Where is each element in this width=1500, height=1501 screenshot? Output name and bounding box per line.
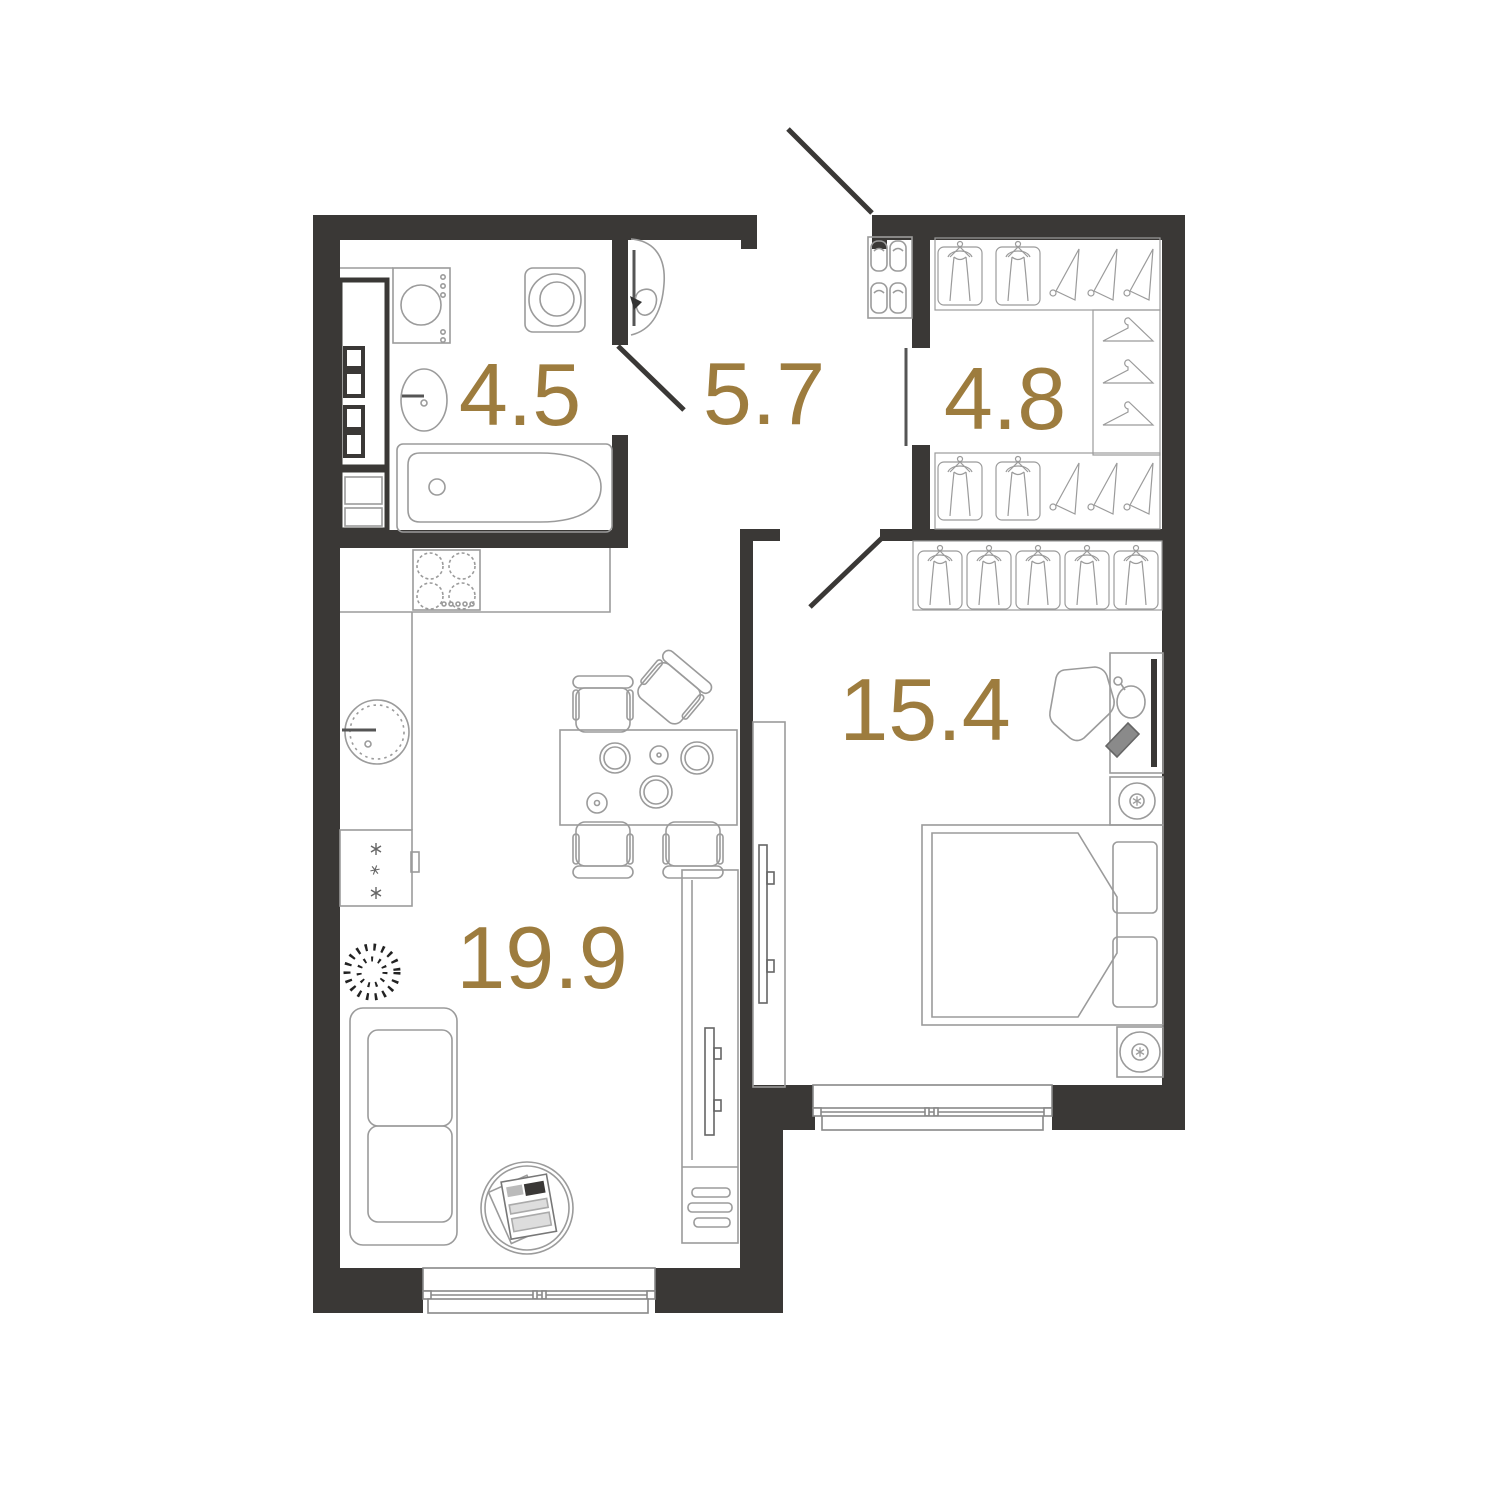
bathroom-sink-icon bbox=[401, 369, 447, 431]
toilet-icon bbox=[525, 268, 585, 332]
entrance-door-swing bbox=[788, 129, 872, 213]
wall-top-right bbox=[872, 215, 1185, 240]
wall-wardrobe-left-lower bbox=[912, 445, 930, 529]
chair-icon bbox=[573, 822, 633, 878]
wall-top-left bbox=[313, 215, 757, 240]
bathroom-door-swing bbox=[618, 346, 684, 410]
wall-right bbox=[1162, 215, 1185, 1130]
wall-living-bottom-right bbox=[655, 1268, 783, 1313]
wall-bedroom-bottom-right bbox=[1052, 1085, 1185, 1130]
pouf-icon bbox=[1117, 1027, 1163, 1077]
wall-partition bbox=[740, 529, 753, 1085]
wall-bathroom-right-lower bbox=[612, 435, 628, 532]
dining-table-icon bbox=[560, 730, 737, 825]
room-label-bathroom: 4.5 bbox=[459, 345, 581, 444]
floor-plan-canvas: 4.5 5.7 4.8 15.4 19.9 bbox=[0, 0, 1500, 1501]
chair-icon bbox=[573, 676, 633, 732]
wall-left bbox=[313, 215, 340, 1313]
room-label-living: 19.9 bbox=[456, 908, 627, 1007]
stool-icon bbox=[1110, 777, 1163, 825]
wall-living-bottom-left bbox=[313, 1268, 423, 1313]
bathtub-icon bbox=[397, 444, 612, 532]
wall-bedroom-top bbox=[880, 529, 1162, 541]
kitchen-sink-icon bbox=[342, 700, 409, 764]
chair-icon bbox=[632, 648, 714, 729]
bedroom-tv-icon bbox=[759, 845, 767, 1003]
corner-washbasin-icon bbox=[630, 239, 664, 335]
wall-bathroom-right-upper bbox=[612, 237, 628, 345]
living-tv-icon bbox=[705, 1028, 714, 1135]
pillow-icon bbox=[1113, 842, 1157, 913]
bedroom-tv-cabinet-icon bbox=[753, 722, 785, 1087]
pillow-icon bbox=[1113, 937, 1157, 1007]
desk-icon bbox=[1106, 653, 1163, 773]
sofa-icon bbox=[350, 1008, 457, 1245]
room-label-wardrobe: 4.8 bbox=[944, 349, 1066, 448]
bed-icon bbox=[922, 825, 1163, 1025]
room-label-hallway: 5.7 bbox=[703, 344, 825, 443]
shoe-rack-icon bbox=[868, 237, 912, 318]
wall-bedroom-bottom-left bbox=[740, 1085, 815, 1130]
fridge-icon bbox=[340, 830, 419, 906]
coffee-table-icon bbox=[481, 1162, 573, 1254]
desk-chair-icon bbox=[1050, 667, 1114, 741]
stove-icon bbox=[413, 550, 480, 610]
window-living bbox=[423, 1268, 655, 1313]
bedroom-door-swing bbox=[810, 538, 882, 607]
window-bedroom bbox=[813, 1085, 1052, 1130]
room-labels: 4.5 5.7 4.8 15.4 19.9 bbox=[456, 344, 1066, 1007]
wall-wardrobe-left-upper bbox=[912, 237, 930, 348]
wall-top-left-tab bbox=[741, 240, 757, 249]
room-label-bedroom: 15.4 bbox=[839, 660, 1010, 759]
tv-stand-icon bbox=[682, 870, 738, 1243]
dining-chairs bbox=[573, 648, 723, 878]
vent-shaft-icon bbox=[340, 280, 387, 530]
plant-icon bbox=[347, 947, 397, 997]
kitchen-counter bbox=[340, 548, 610, 830]
bedroom-clothes-rail bbox=[913, 541, 1162, 610]
